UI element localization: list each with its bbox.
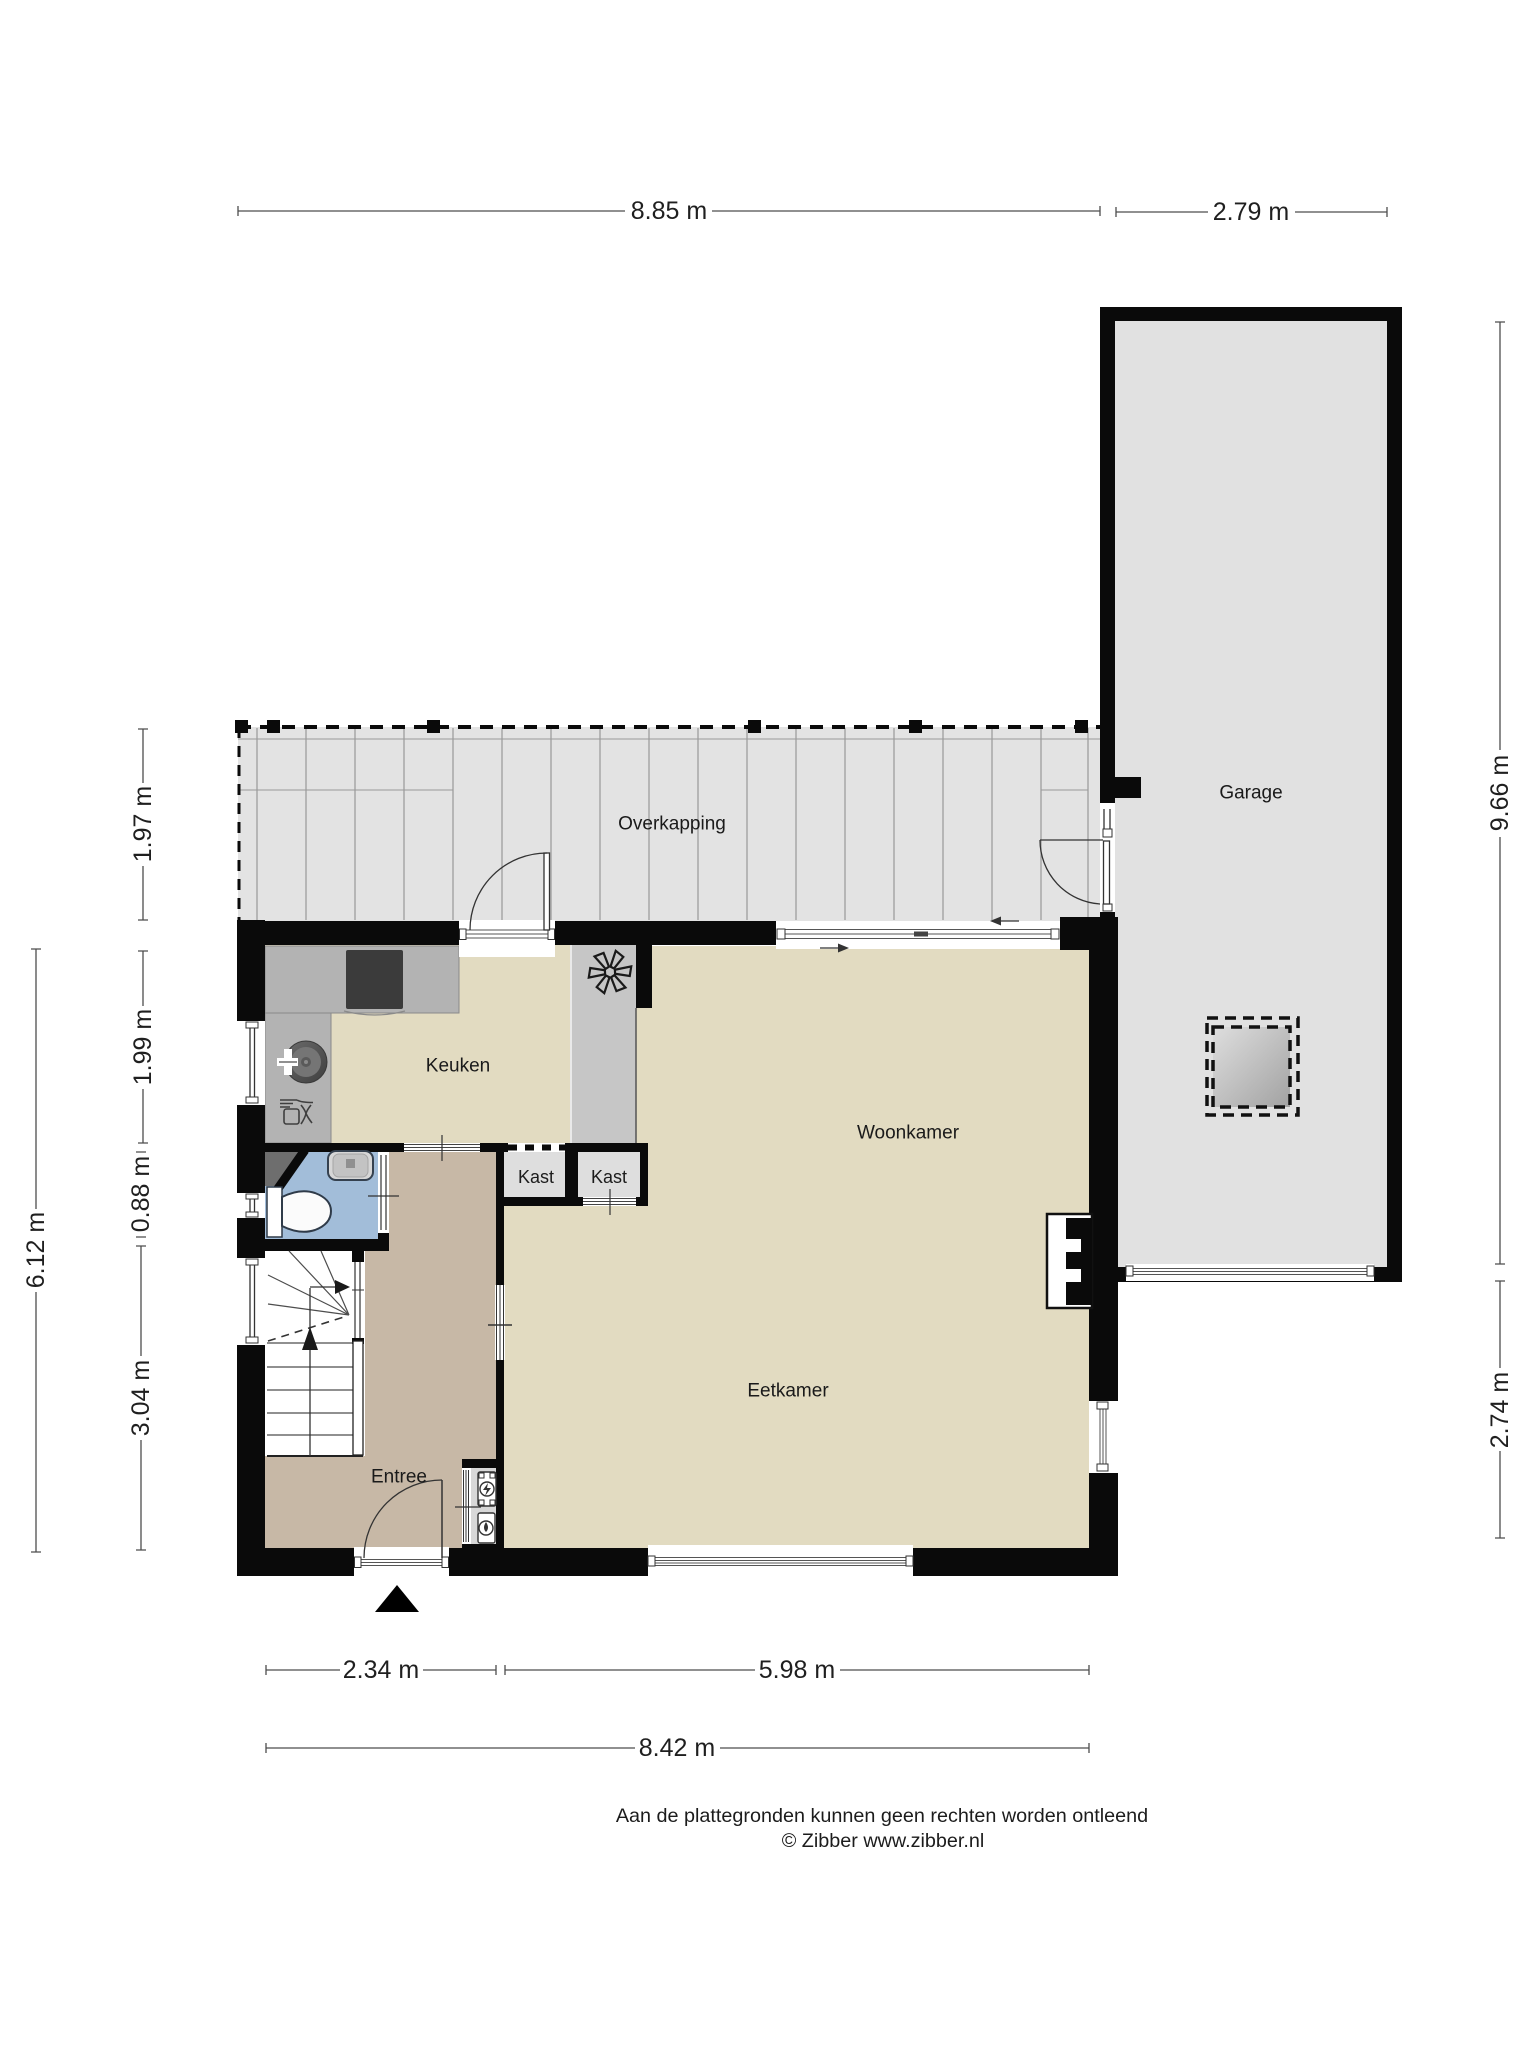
svg-text:1.99 m: 1.99 m [129, 1009, 157, 1085]
svg-text:© Zibber www.zibber.nl: © Zibber www.zibber.nl [782, 1830, 985, 1852]
svg-text:8.85 m: 8.85 m [631, 197, 707, 225]
svg-text:Aan de plattegronden kunnen ge: Aan de plattegronden kunnen geen rechten… [616, 1805, 1148, 1827]
svg-text:Kast: Kast [518, 1167, 554, 1187]
svg-text:Keuken: Keuken [426, 1056, 490, 1077]
svg-text:Entree: Entree [371, 1467, 427, 1488]
svg-text:8.42 m: 8.42 m [639, 1734, 715, 1762]
svg-text:5.98 m: 5.98 m [759, 1656, 835, 1684]
svg-text:Woonkamer: Woonkamer [857, 1123, 960, 1144]
svg-text:6.12 m: 6.12 m [22, 1212, 50, 1288]
svg-text:Overkapping: Overkapping [618, 814, 726, 835]
svg-text:Kast: Kast [591, 1167, 627, 1187]
svg-text:Garage: Garage [1219, 783, 1282, 804]
svg-text:0.88 m: 0.88 m [127, 1156, 155, 1232]
svg-text:2.79 m: 2.79 m [1213, 198, 1289, 226]
svg-text:9.66 m: 9.66 m [1486, 755, 1514, 831]
svg-text:2.34 m: 2.34 m [343, 1656, 419, 1684]
svg-text:1.97 m: 1.97 m [129, 786, 157, 862]
svg-text:3.04 m: 3.04 m [127, 1360, 155, 1436]
svg-text:Eetkamer: Eetkamer [747, 1381, 829, 1402]
svg-text:2.74 m: 2.74 m [1486, 1372, 1514, 1448]
